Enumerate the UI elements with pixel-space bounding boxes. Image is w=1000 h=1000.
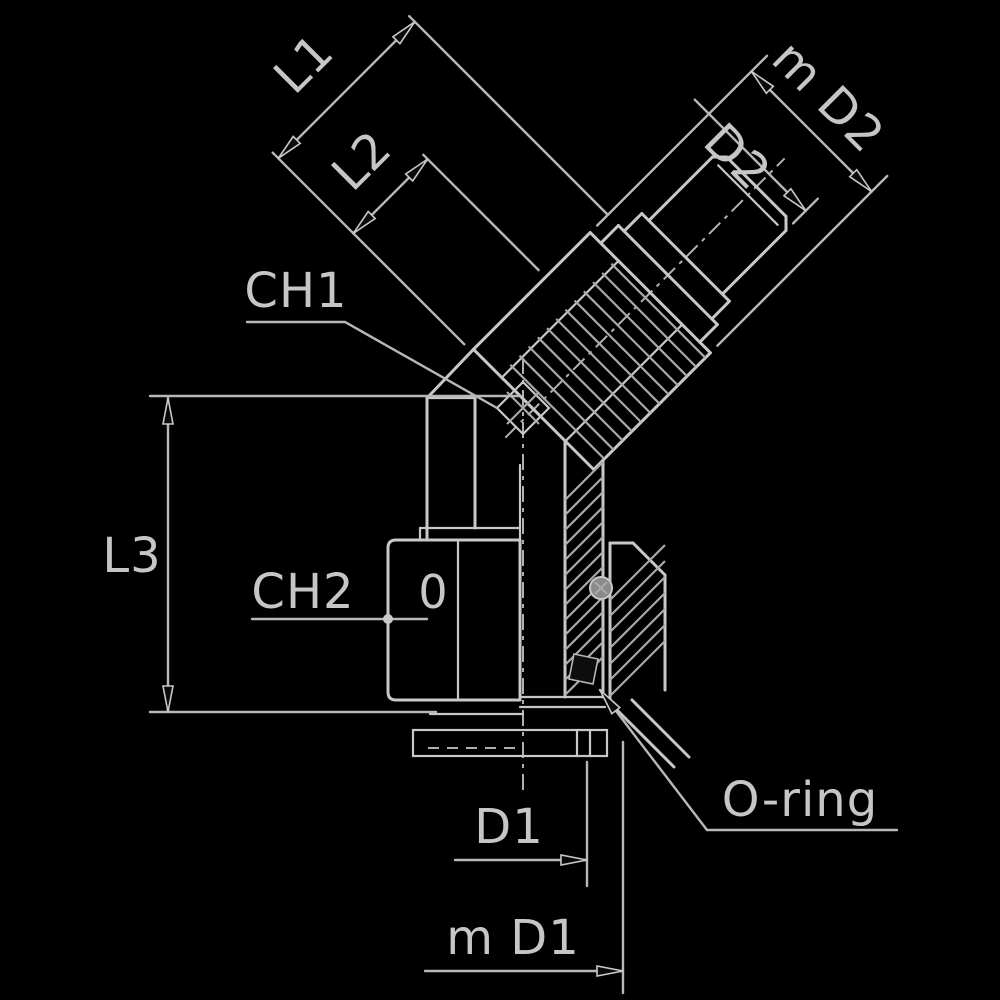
callout-label-o-ring: O-ring — [722, 772, 878, 828]
seal-groove-section — [569, 654, 598, 684]
dim-label-m-d1: m D1 — [446, 910, 580, 966]
dim-label-m-d2: m D2 — [761, 30, 895, 164]
body-outline — [427, 349, 520, 540]
dim-label-l3: L3 — [102, 528, 161, 584]
callout-label-ch2: CH2 — [251, 564, 354, 620]
dim-label-l2: L2 — [321, 120, 403, 202]
dim-label-d1: D1 — [474, 799, 544, 855]
dim-label-d2: D2 — [693, 113, 782, 202]
fitting-diagram: L1 L2 m D2 D2 CH1 L3 CH2 0 O-ring D1 m D… — [0, 0, 1000, 1000]
hex-nut — [388, 528, 520, 700]
dim-label-l1: L1 — [263, 23, 345, 105]
technical-drawing-canvas: L1 L2 m D2 D2 CH1 L3 CH2 0 O-ring D1 m D… — [0, 0, 1000, 1000]
branch-thread-stripes — [510, 264, 705, 459]
callout-label-ch1: CH1 — [244, 263, 347, 319]
nut-zero-mark: 0 — [418, 565, 447, 619]
dim-l3 — [150, 396, 520, 712]
